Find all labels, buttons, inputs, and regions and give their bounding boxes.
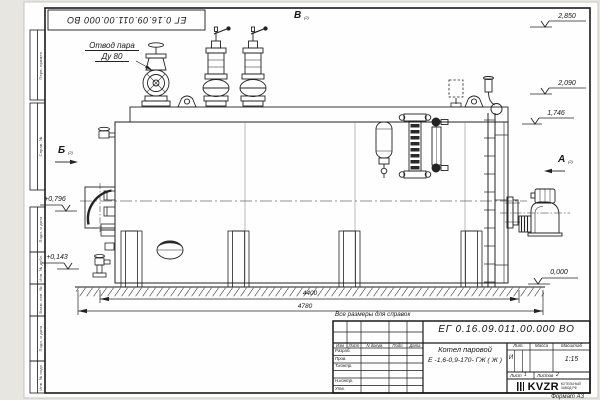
tb-sheet-value: 1 (524, 373, 527, 378)
tb-col-date: Дата (407, 344, 423, 348)
tb-row-utv: Утв. (335, 387, 345, 392)
stamp-number-top: ЕГ 0.16.09.011.00.000 ВО (48, 10, 205, 30)
tb-name-line2: Е -1,6-0,9-170- ГЖ ( Ж ) (424, 357, 506, 364)
elevation-2850: 2,850 (548, 13, 586, 20)
tb-lit-label: Лит. (507, 344, 530, 349)
dim-4400: 4400 (270, 291, 350, 298)
margin-label-podp-data-2: Подп. и дата (36, 316, 45, 361)
tb-scale-label: Масштаб (553, 344, 590, 349)
elevation-1746: 1,746 (538, 110, 574, 117)
tb-row-prov: Пров. (335, 357, 346, 362)
tb-col-doc: N докум. (361, 344, 389, 348)
tb-sheet-label: Лист (510, 374, 522, 379)
margin-label-sprav-no: Справ. № (36, 103, 45, 190)
elevation-0143: +0,143 (40, 254, 74, 261)
tb-sheets-label: Листов (537, 374, 553, 379)
callout-steam-line2: Ду 80 (95, 53, 129, 62)
tb-name-line1: Котел паровой (424, 346, 506, 354)
view-label-left-ref: (2) (68, 151, 73, 155)
company-subtext-line2: ЗАВОД РФ (561, 386, 577, 390)
elevation-0796: +0,796 (38, 196, 72, 203)
elevation-0000: 0,000 (540, 269, 578, 276)
drawing-sheet: ЕГ 0.16.09.011.00.000 ВО Перв. примен. С… (0, 0, 600, 400)
margin-label-vzam-inv: Взам. инв. № (36, 284, 45, 316)
tb-company: KVZR КОТЕЛЬНЫЙ ЗАВОД РФ (509, 380, 589, 393)
reference-note: Все размеры для справок (335, 312, 410, 319)
drawing-linework (0, 0, 600, 400)
tb-mass-label: Масса (530, 344, 553, 349)
tb-designation: ЕГ 0.16.09.011.00.000 ВО (424, 325, 589, 336)
view-label-top-ref: (2) (304, 16, 309, 20)
view-label-left: Б (58, 146, 65, 157)
company-logo-icon (517, 382, 524, 391)
company-subtext: КОТЕЛЬНЫЙ ЗАВОД РФ (561, 383, 581, 390)
tb-scale-value: 1:15 (553, 356, 590, 363)
margin-label-perv-primen: Перв. примен. (36, 30, 45, 100)
tb-lit-value: И (507, 355, 515, 361)
elevation-2090: 2,090 (548, 80, 586, 87)
view-label-right: А (558, 155, 565, 166)
tb-row-tkontr: Т.контр. (335, 364, 352, 369)
margin-label-inv-podl: Инв. № подл. (36, 361, 45, 393)
company-logo-text: KVZR (528, 381, 559, 393)
tb-row-razrab: Разраб. (335, 349, 351, 354)
tb-row-nkontr: Н.контр. (335, 379, 353, 384)
view-label-right-ref: (2) (568, 160, 573, 164)
tb-col-podp: Подп. (389, 344, 407, 348)
callout-steam-line1: Отвод пара (85, 42, 139, 51)
dim-4780: 4780 (265, 304, 345, 311)
tb-sheets-value: 2 (556, 373, 559, 378)
format-label: Формат А3 (540, 394, 595, 400)
view-label-top: В (294, 11, 301, 22)
margin-label-podp-data-1: Подп. и дата (36, 207, 45, 252)
